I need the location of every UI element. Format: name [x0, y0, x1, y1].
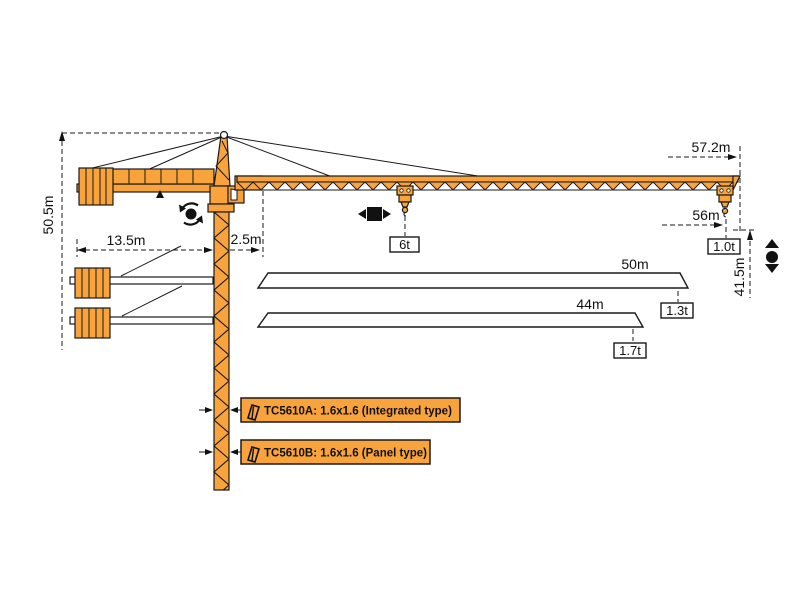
mast-model-b-label: TC5610B: 1.6x1.6 (Panel type) — [264, 448, 427, 460]
hook-icon — [402, 207, 407, 212]
arrowhead-right-icon — [204, 247, 213, 253]
arrowhead-right-icon — [205, 407, 213, 413]
arrowhead-left-icon — [77, 247, 86, 253]
tip-load-44m-value: 1.7t — [619, 343, 641, 358]
overall-reach-label: 57.2m — [692, 139, 731, 155]
crane-diagram-canvas: 50.5m 13.5m 2.5m 57.2m 56m 41.5m 50m 44m… — [0, 0, 800, 600]
counter-jib-beam — [112, 169, 214, 184]
arrowhead-right-icon — [251, 247, 260, 253]
crane-structure — [70, 132, 740, 491]
mid-trolley-hook — [397, 186, 413, 216]
tip-load-56m-value: 1.0t — [713, 239, 735, 254]
arrowhead-right-icon — [205, 449, 213, 455]
trolley-frame — [397, 186, 413, 195]
motion-icons — [179, 203, 779, 273]
arrowhead-up-icon — [747, 230, 753, 240]
hook-icon — [722, 208, 727, 213]
counterweight-stack — [75, 308, 110, 338]
slewing-rotation-icon — [179, 203, 203, 224]
counter-jib — [77, 168, 214, 205]
cab-window — [231, 189, 237, 200]
jib-tip — [733, 176, 740, 190]
hook-block — [719, 195, 731, 202]
hook-block-taper — [401, 202, 409, 207]
tip-radius-label: 56m — [692, 207, 719, 223]
trolley-wheel-icon — [727, 189, 730, 192]
turntable-collar — [208, 204, 234, 212]
trolley-wheel-icon — [720, 189, 723, 192]
hook-block — [399, 195, 411, 202]
hook-hoisting-icon — [765, 239, 779, 273]
arrowhead-left-icon — [230, 407, 238, 413]
trolley-wheel-icon — [400, 189, 403, 192]
jib-44m-label: 44m — [576, 296, 603, 312]
jib-root-offset-label: 2.5m — [230, 231, 261, 247]
hook-height-label: 41.5m — [731, 258, 747, 297]
counterweight-option-44m — [70, 308, 213, 338]
mast-model-a-label: TC5610A: 1.6x1.6 (Integrated type) — [264, 406, 452, 418]
trolley-travel-icon — [358, 207, 391, 221]
crane-diagram-page: 50.5m 13.5m 2.5m 57.2m 56m 41.5m 50m 44m… — [0, 0, 800, 600]
load-curve-44m — [258, 313, 643, 327]
mast-lattice — [214, 212, 229, 490]
tip-load-50m-value: 1.3t — [666, 303, 688, 318]
trolley-wheel-icon — [407, 189, 410, 192]
jib-top-chord — [237, 176, 738, 182]
load-rating-boxes — [390, 237, 740, 358]
hook-block-taper — [721, 202, 729, 207]
load-curves — [258, 273, 688, 327]
counterweight-option-50m — [70, 268, 213, 298]
counterweight-stack — [75, 268, 110, 298]
main-jib — [235, 176, 740, 190]
counterweight-stack — [79, 168, 113, 205]
tower-mast — [214, 212, 229, 490]
jib-lattice — [237, 182, 733, 190]
jib-50m-label: 50m — [621, 256, 648, 272]
max-load-value: 6t — [399, 237, 410, 252]
load-curve-50m — [258, 273, 688, 288]
total-height-label: 50.5m — [40, 196, 56, 235]
counter-jib-radius-label: 13.5m — [107, 232, 146, 248]
apex-pulley-icon — [221, 132, 228, 139]
arrowhead-left-icon — [230, 449, 238, 455]
